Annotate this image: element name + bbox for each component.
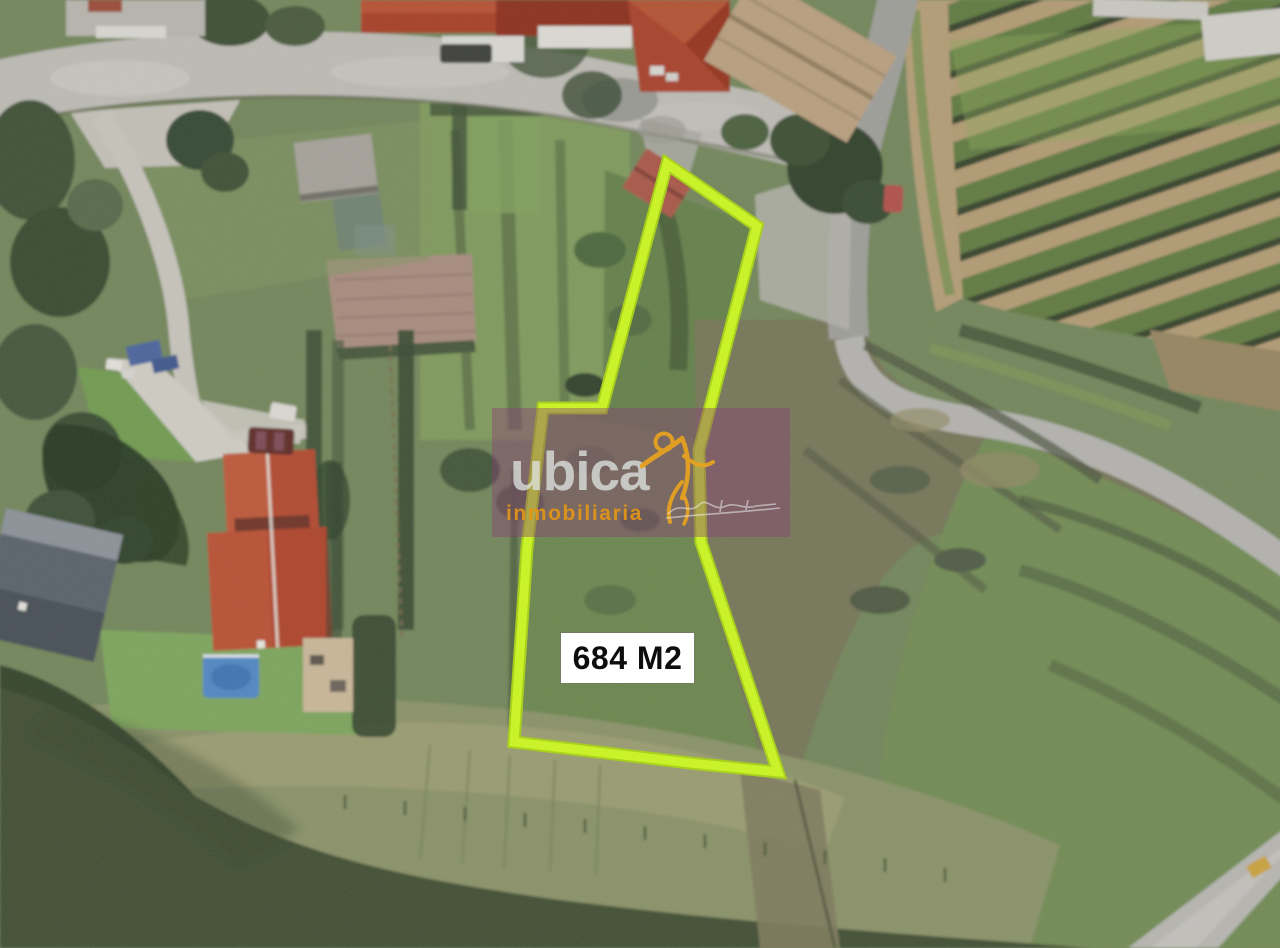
brand-tagline: inmobiliaria [506, 502, 643, 526]
watermark-overlay: ubica inmobiliaria [492, 408, 790, 537]
brand-name: ubica [510, 444, 649, 499]
signature-scribble [664, 494, 782, 522]
aerial-photo: ubica inmobiliaria 684 M2 [0, 0, 1280, 948]
area-label-text: 684 M2 [573, 640, 683, 677]
area-label: 684 M2 [561, 633, 694, 683]
